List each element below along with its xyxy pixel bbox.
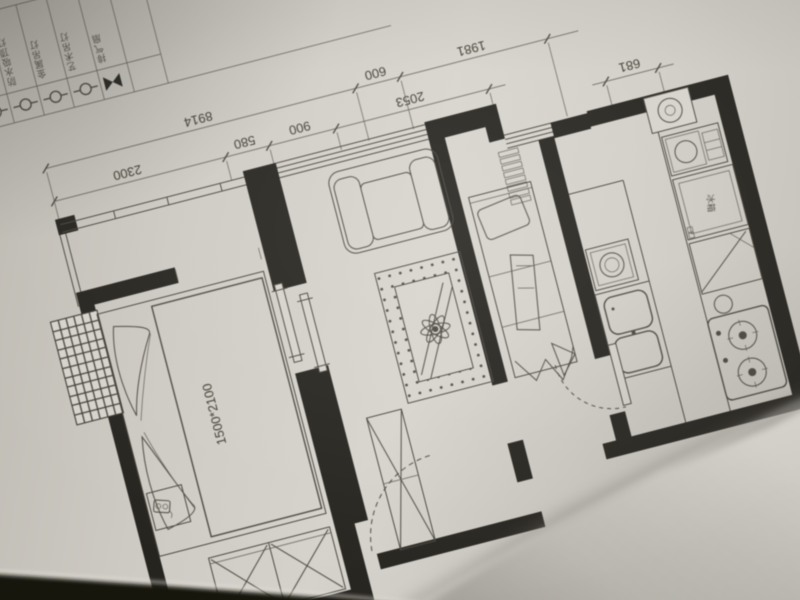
dim-600: 600 xyxy=(363,63,388,83)
sink-drain xyxy=(712,293,734,315)
dim-681: 681 xyxy=(617,56,642,76)
walls xyxy=(25,46,800,600)
dim-900: 900 xyxy=(287,118,312,138)
dim-8914: 8914 xyxy=(182,108,214,130)
lamp-symbol xyxy=(0,104,9,121)
nightstand xyxy=(146,485,190,531)
floor-plan-svg: 吸顶灯 防水吸顶灯 金属吊灯 艺术吊灯 排气扇 xyxy=(0,0,800,600)
legend-table: 吸顶灯 防水吸顶灯 金属吊灯 艺术吊灯 排气扇 xyxy=(0,0,391,132)
wardrobe xyxy=(209,527,346,600)
floor-plan-drawing: 吸顶灯 防水吸顶灯 金属吊灯 艺术吊灯 排气扇 xyxy=(0,0,800,600)
bed-size-label: 1500*2100 xyxy=(199,382,229,447)
legend-label: 金属吊灯 xyxy=(28,39,47,81)
lamp-symbol xyxy=(42,88,69,105)
dim-580: 580 xyxy=(232,132,257,152)
corner-cabinet xyxy=(689,228,762,294)
legend-label: 艺术吊灯 xyxy=(58,31,77,72)
pillow xyxy=(476,194,531,241)
plant-icon xyxy=(417,311,454,348)
legend-label: 防水吸顶灯 xyxy=(0,37,17,89)
dim-1981: 1981 xyxy=(455,38,487,60)
fan-symbol xyxy=(103,73,123,91)
dim-2300: 2300 xyxy=(112,162,144,184)
lamp-symbol xyxy=(12,96,39,113)
bathroom-door-leaf xyxy=(608,343,631,405)
double-basin-sink xyxy=(595,281,671,380)
fridge-label: 冰箱 xyxy=(705,194,717,213)
legend-label: 排气扇 xyxy=(91,33,107,65)
dim-2053: 2053 xyxy=(394,89,426,111)
photo-of-floor-plan: 吸顶灯 防水吸顶灯 金属吊灯 艺术吊灯 排气扇 xyxy=(0,0,800,600)
washbasin-unit xyxy=(585,239,638,291)
grid-window xyxy=(50,310,123,425)
lamp-symbol xyxy=(72,81,99,98)
radiator-icon xyxy=(498,148,531,205)
double-bed: 1500*2100 xyxy=(97,271,326,556)
hall-cabinet xyxy=(367,409,436,550)
water-heater xyxy=(643,87,697,133)
